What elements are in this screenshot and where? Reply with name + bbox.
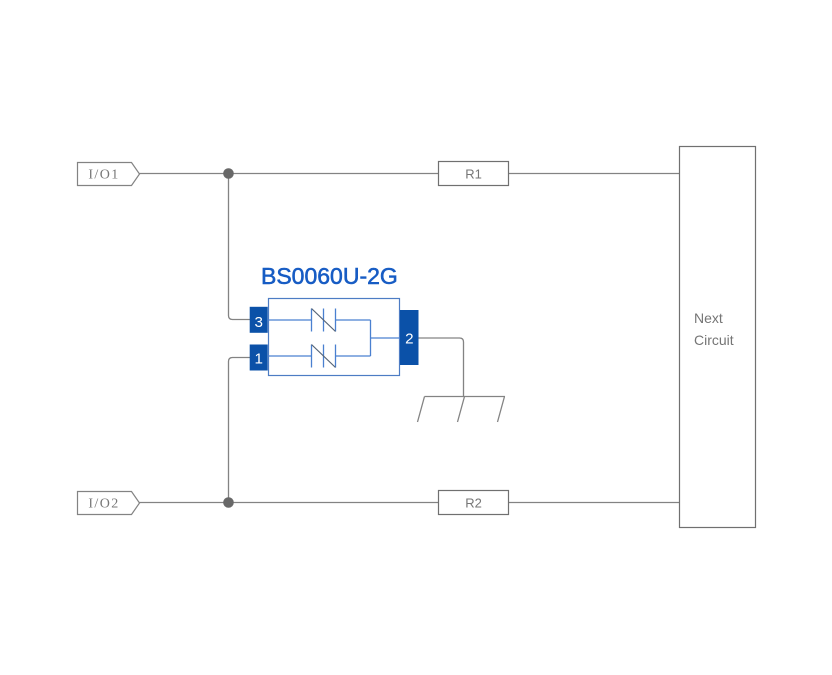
svg-text:I/O1: I/O1 <box>88 168 119 183</box>
svg-text:Next: Next <box>694 310 723 326</box>
svg-text:R2: R2 <box>465 496 482 511</box>
svg-text:1: 1 <box>254 351 262 368</box>
svg-text:BS0060U-2G: BS0060U-2G <box>261 263 398 289</box>
svg-text:2: 2 <box>405 331 413 348</box>
svg-text:3: 3 <box>254 314 262 331</box>
svg-text:R1: R1 <box>465 167 482 182</box>
svg-text:I/O2: I/O2 <box>88 497 119 512</box>
svg-text:Circuit: Circuit <box>694 332 734 348</box>
